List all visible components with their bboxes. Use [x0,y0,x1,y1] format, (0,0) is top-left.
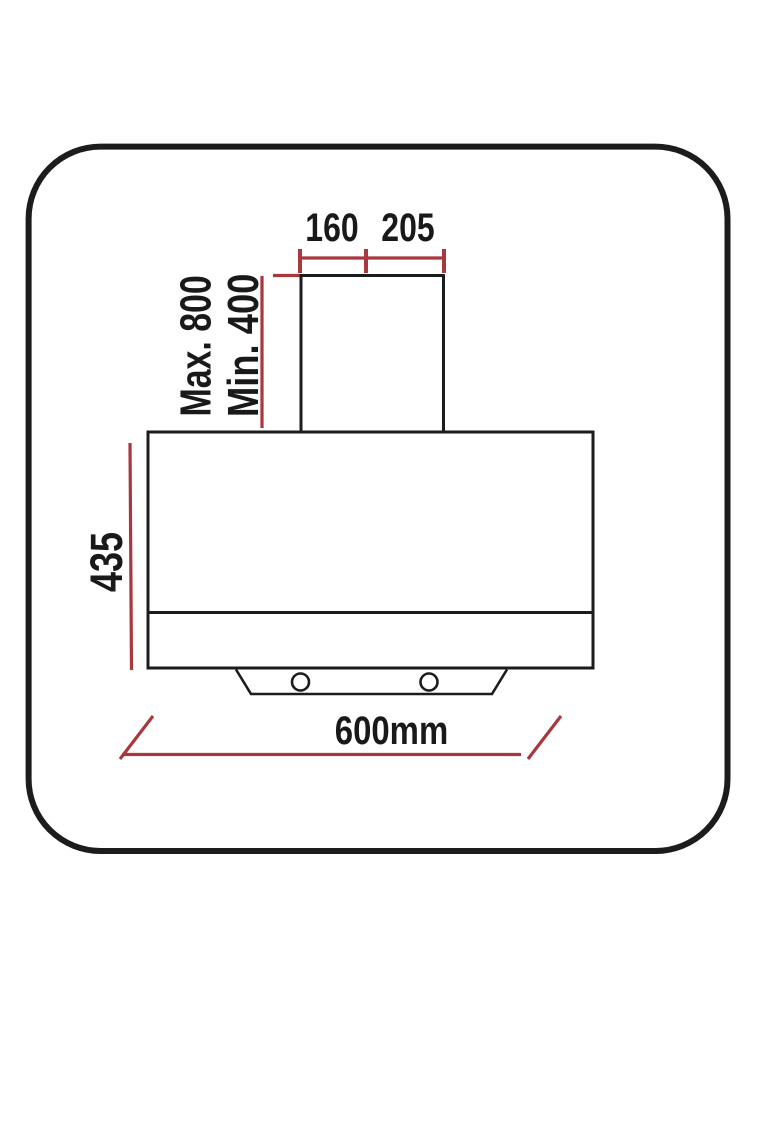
svg-text:160: 160 [305,205,358,250]
svg-text:Min. 400: Min. 400 [218,274,268,417]
svg-text:600mm: 600mm [335,708,448,753]
svg-text:205: 205 [381,205,434,250]
svg-text:435: 435 [81,532,132,592]
svg-text:Max. 800: Max. 800 [171,275,220,416]
